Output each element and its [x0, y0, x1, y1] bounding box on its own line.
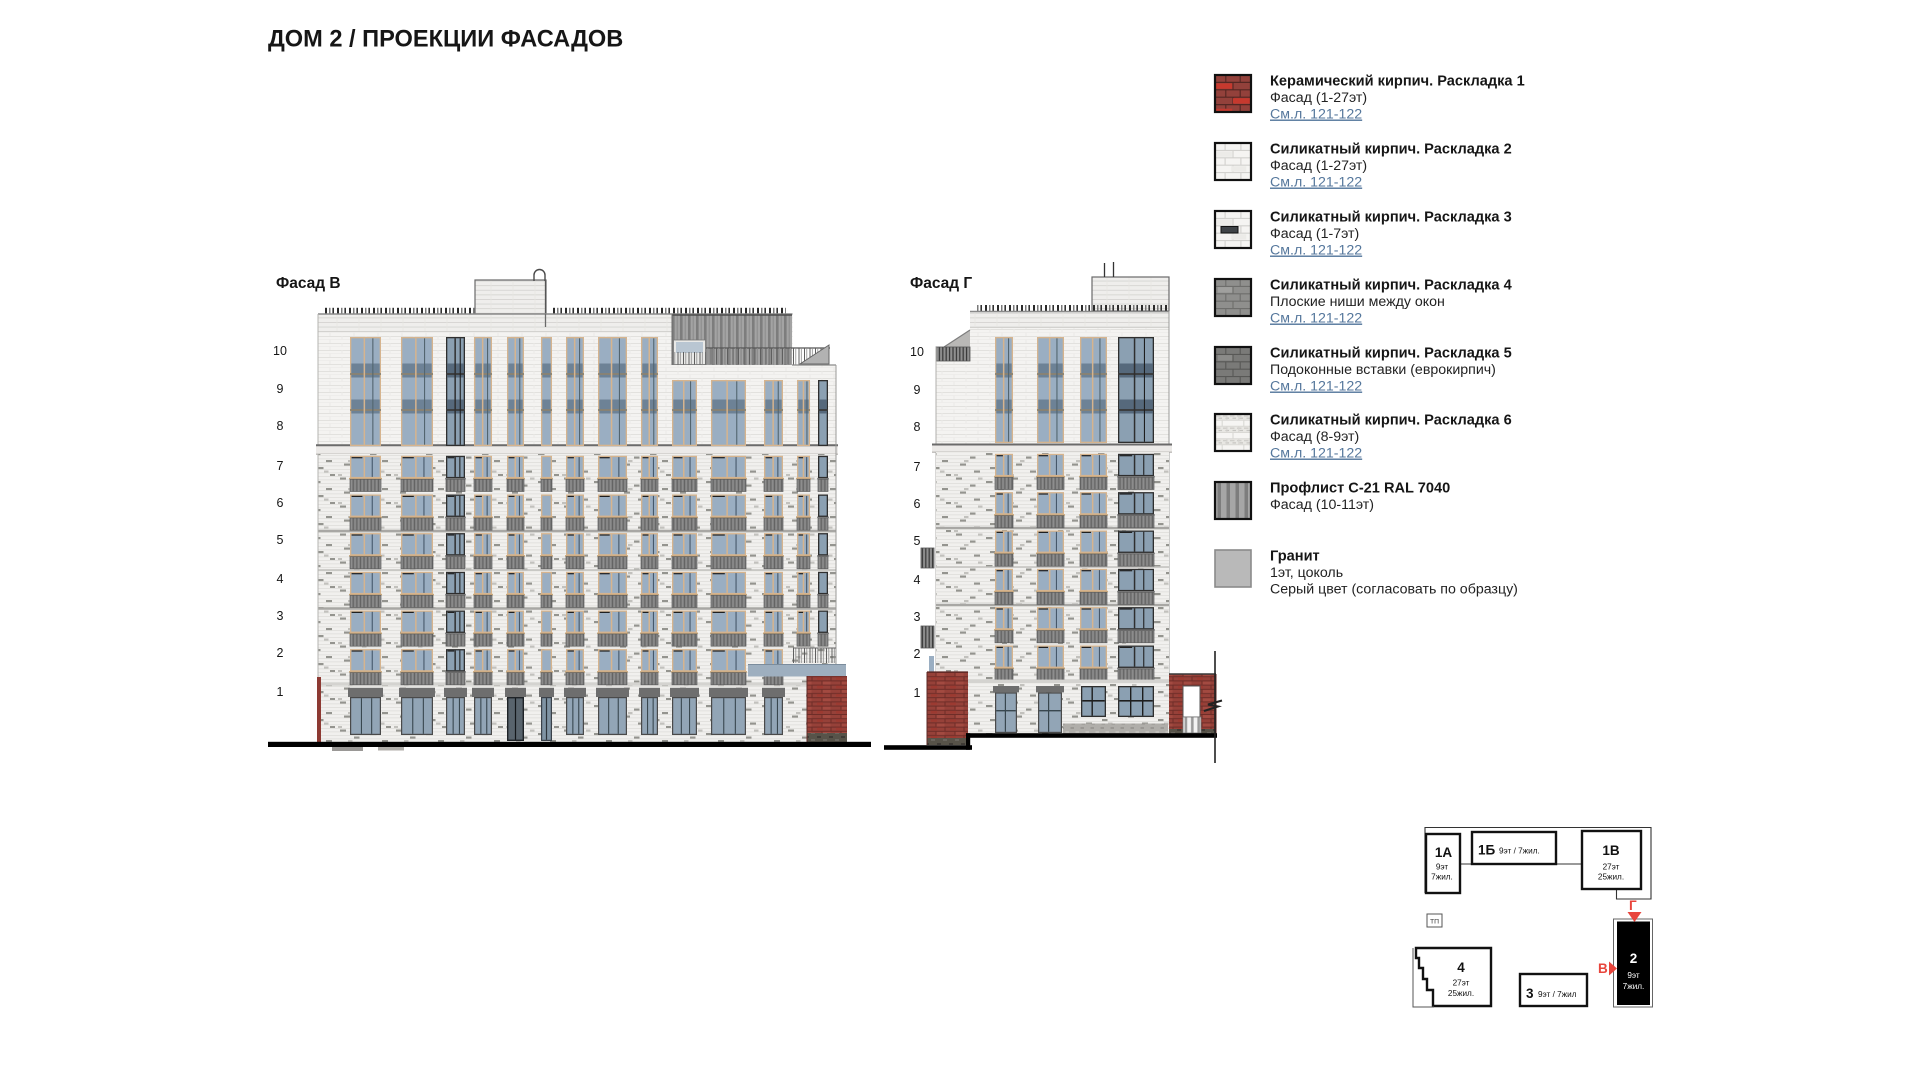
svg-text:Фасад (1-27эт): Фасад (1-27эт) [1270, 158, 1367, 174]
svg-text:9эт: 9эт [1627, 971, 1640, 980]
svg-text:В: В [1598, 961, 1608, 976]
svg-text:Керамический кирпич. Раскладка: Керамический кирпич. Раскладка 1 [1270, 74, 1525, 90]
svg-text:10: 10 [910, 345, 924, 359]
svg-text:1А: 1А [1435, 845, 1453, 860]
svg-text:5: 5 [914, 534, 921, 548]
svg-text:См.л. 121-122: См.л. 121-122 [1270, 379, 1362, 395]
svg-text:3: 3 [914, 610, 921, 624]
svg-text:7: 7 [277, 459, 284, 473]
svg-text:Фасад (1-7эт): Фасад (1-7эт) [1270, 226, 1359, 242]
svg-text:Плоские ниши между окон: Плоские ниши между окон [1270, 294, 1445, 310]
svg-text:9эт / 7жил: 9эт / 7жил [1538, 990, 1577, 999]
svg-text:10: 10 [273, 344, 287, 358]
svg-text:27эт: 27эт [1453, 979, 1470, 988]
svg-text:2: 2 [914, 647, 921, 661]
svg-text:3: 3 [277, 609, 284, 623]
svg-text:1: 1 [914, 686, 921, 700]
svg-text:См.л. 121-122: См.л. 121-122 [1270, 311, 1362, 327]
svg-text:9: 9 [277, 382, 284, 396]
svg-text:Подоконные вставки (еврокирпич: Подоконные вставки (еврокирпич) [1270, 362, 1496, 378]
svg-text:3: 3 [1526, 986, 1534, 1001]
svg-text:Серый цвет (согласовать по обр: Серый цвет (согласовать по образцу) [1270, 582, 1518, 598]
svg-text:7жил.: 7жил. [1623, 982, 1645, 991]
svg-text:Фасад (1-27эт): Фасад (1-27эт) [1270, 90, 1367, 106]
svg-text:4: 4 [914, 573, 921, 587]
svg-text:Фасад (10-11эт): Фасад (10-11эт) [1270, 497, 1374, 513]
svg-text:27эт: 27эт [1603, 863, 1620, 872]
svg-text:2: 2 [1630, 951, 1638, 966]
svg-text:Силикатный кирпич. Раскладка 4: Силикатный кирпич. Раскладка 4 [1270, 278, 1513, 294]
svg-text:25жил.: 25жил. [1598, 873, 1624, 882]
svg-text:См.л. 121-122: См.л. 121-122 [1270, 107, 1362, 123]
svg-text:5: 5 [277, 533, 284, 547]
svg-text:ТП: ТП [1430, 919, 1439, 926]
svg-text:7: 7 [914, 460, 921, 474]
svg-text:Силикатный кирпич. Раскладка 3: Силикатный кирпич. Раскладка 3 [1270, 210, 1512, 226]
svg-text:9: 9 [914, 383, 921, 397]
svg-text:2: 2 [277, 646, 284, 660]
svg-text:1эт, цоколь: 1эт, цоколь [1270, 565, 1343, 581]
svg-text:Силикатный кирпич. Раскладка 2: Силикатный кирпич. Раскладка 2 [1270, 142, 1512, 158]
svg-text:См.л. 121-122: См.л. 121-122 [1270, 446, 1362, 462]
svg-text:ДОМ 2 / ПРОЕКЦИИ ФАСАДОВ: ДОМ 2 / ПРОЕКЦИИ ФАСАДОВ [268, 27, 623, 53]
svg-text:4: 4 [1457, 960, 1465, 975]
svg-text:См.л. 121-122: См.л. 121-122 [1270, 175, 1362, 191]
svg-text:Гранит: Гранит [1270, 549, 1320, 565]
svg-text:1: 1 [277, 685, 284, 699]
svg-text:1Б: 1Б [1478, 843, 1496, 858]
svg-text:8: 8 [277, 419, 284, 433]
svg-text:Г: Г [1629, 898, 1637, 913]
svg-text:9эт: 9эт [1436, 863, 1449, 872]
svg-text:См.л. 121-122: См.л. 121-122 [1270, 243, 1362, 259]
svg-text:4: 4 [277, 572, 284, 586]
svg-text:9эт / 7жил.: 9эт / 7жил. [1499, 847, 1540, 856]
svg-text:Фасад В: Фасад В [276, 275, 341, 292]
svg-text:Силикатный кирпич. Раскладка 6: Силикатный кирпич. Раскладка 6 [1270, 413, 1512, 429]
svg-text:Профлист С-21 RAL 7040: Профлист С-21 RAL 7040 [1270, 481, 1450, 497]
svg-text:1В: 1В [1602, 843, 1620, 858]
svg-text:7жил.: 7жил. [1431, 873, 1453, 882]
svg-text:6: 6 [914, 497, 921, 511]
svg-text:6: 6 [277, 496, 284, 510]
svg-text:Фасад Г: Фасад Г [910, 275, 972, 292]
svg-text:25жил.: 25жил. [1448, 989, 1474, 998]
svg-text:Фасад (8-9эт): Фасад (8-9эт) [1270, 429, 1359, 445]
svg-text:8: 8 [914, 420, 921, 434]
svg-text:Силикатный кирпич. Раскладка 5: Силикатный кирпич. Раскладка 5 [1270, 346, 1512, 362]
